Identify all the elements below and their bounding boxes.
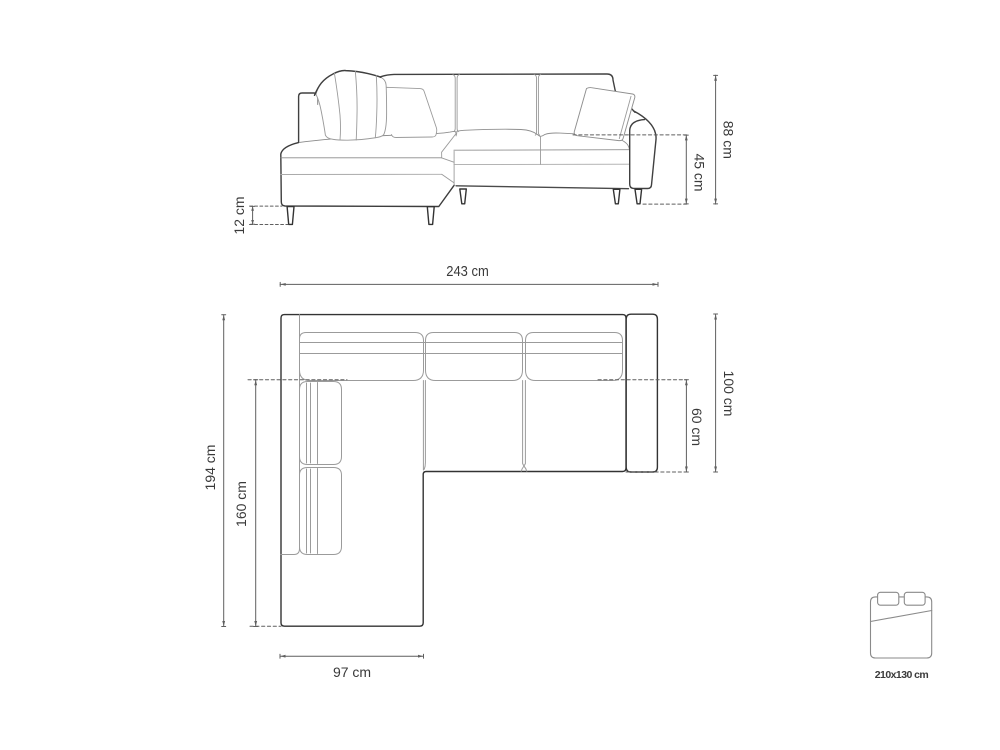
svg-text:45 cm: 45 cm [692,153,708,191]
svg-text:210x130 cm: 210x130 cm [875,669,929,681]
svg-text:100 cm: 100 cm [721,371,737,417]
svg-text:243 cm: 243 cm [446,263,489,280]
svg-text:97 cm: 97 cm [333,664,371,680]
svg-text:88 cm: 88 cm [721,121,737,159]
svg-text:12 cm: 12 cm [231,196,247,234]
svg-text:194 cm: 194 cm [202,445,218,491]
svg-text:60 cm: 60 cm [689,408,705,446]
svg-text:160 cm: 160 cm [233,481,249,527]
